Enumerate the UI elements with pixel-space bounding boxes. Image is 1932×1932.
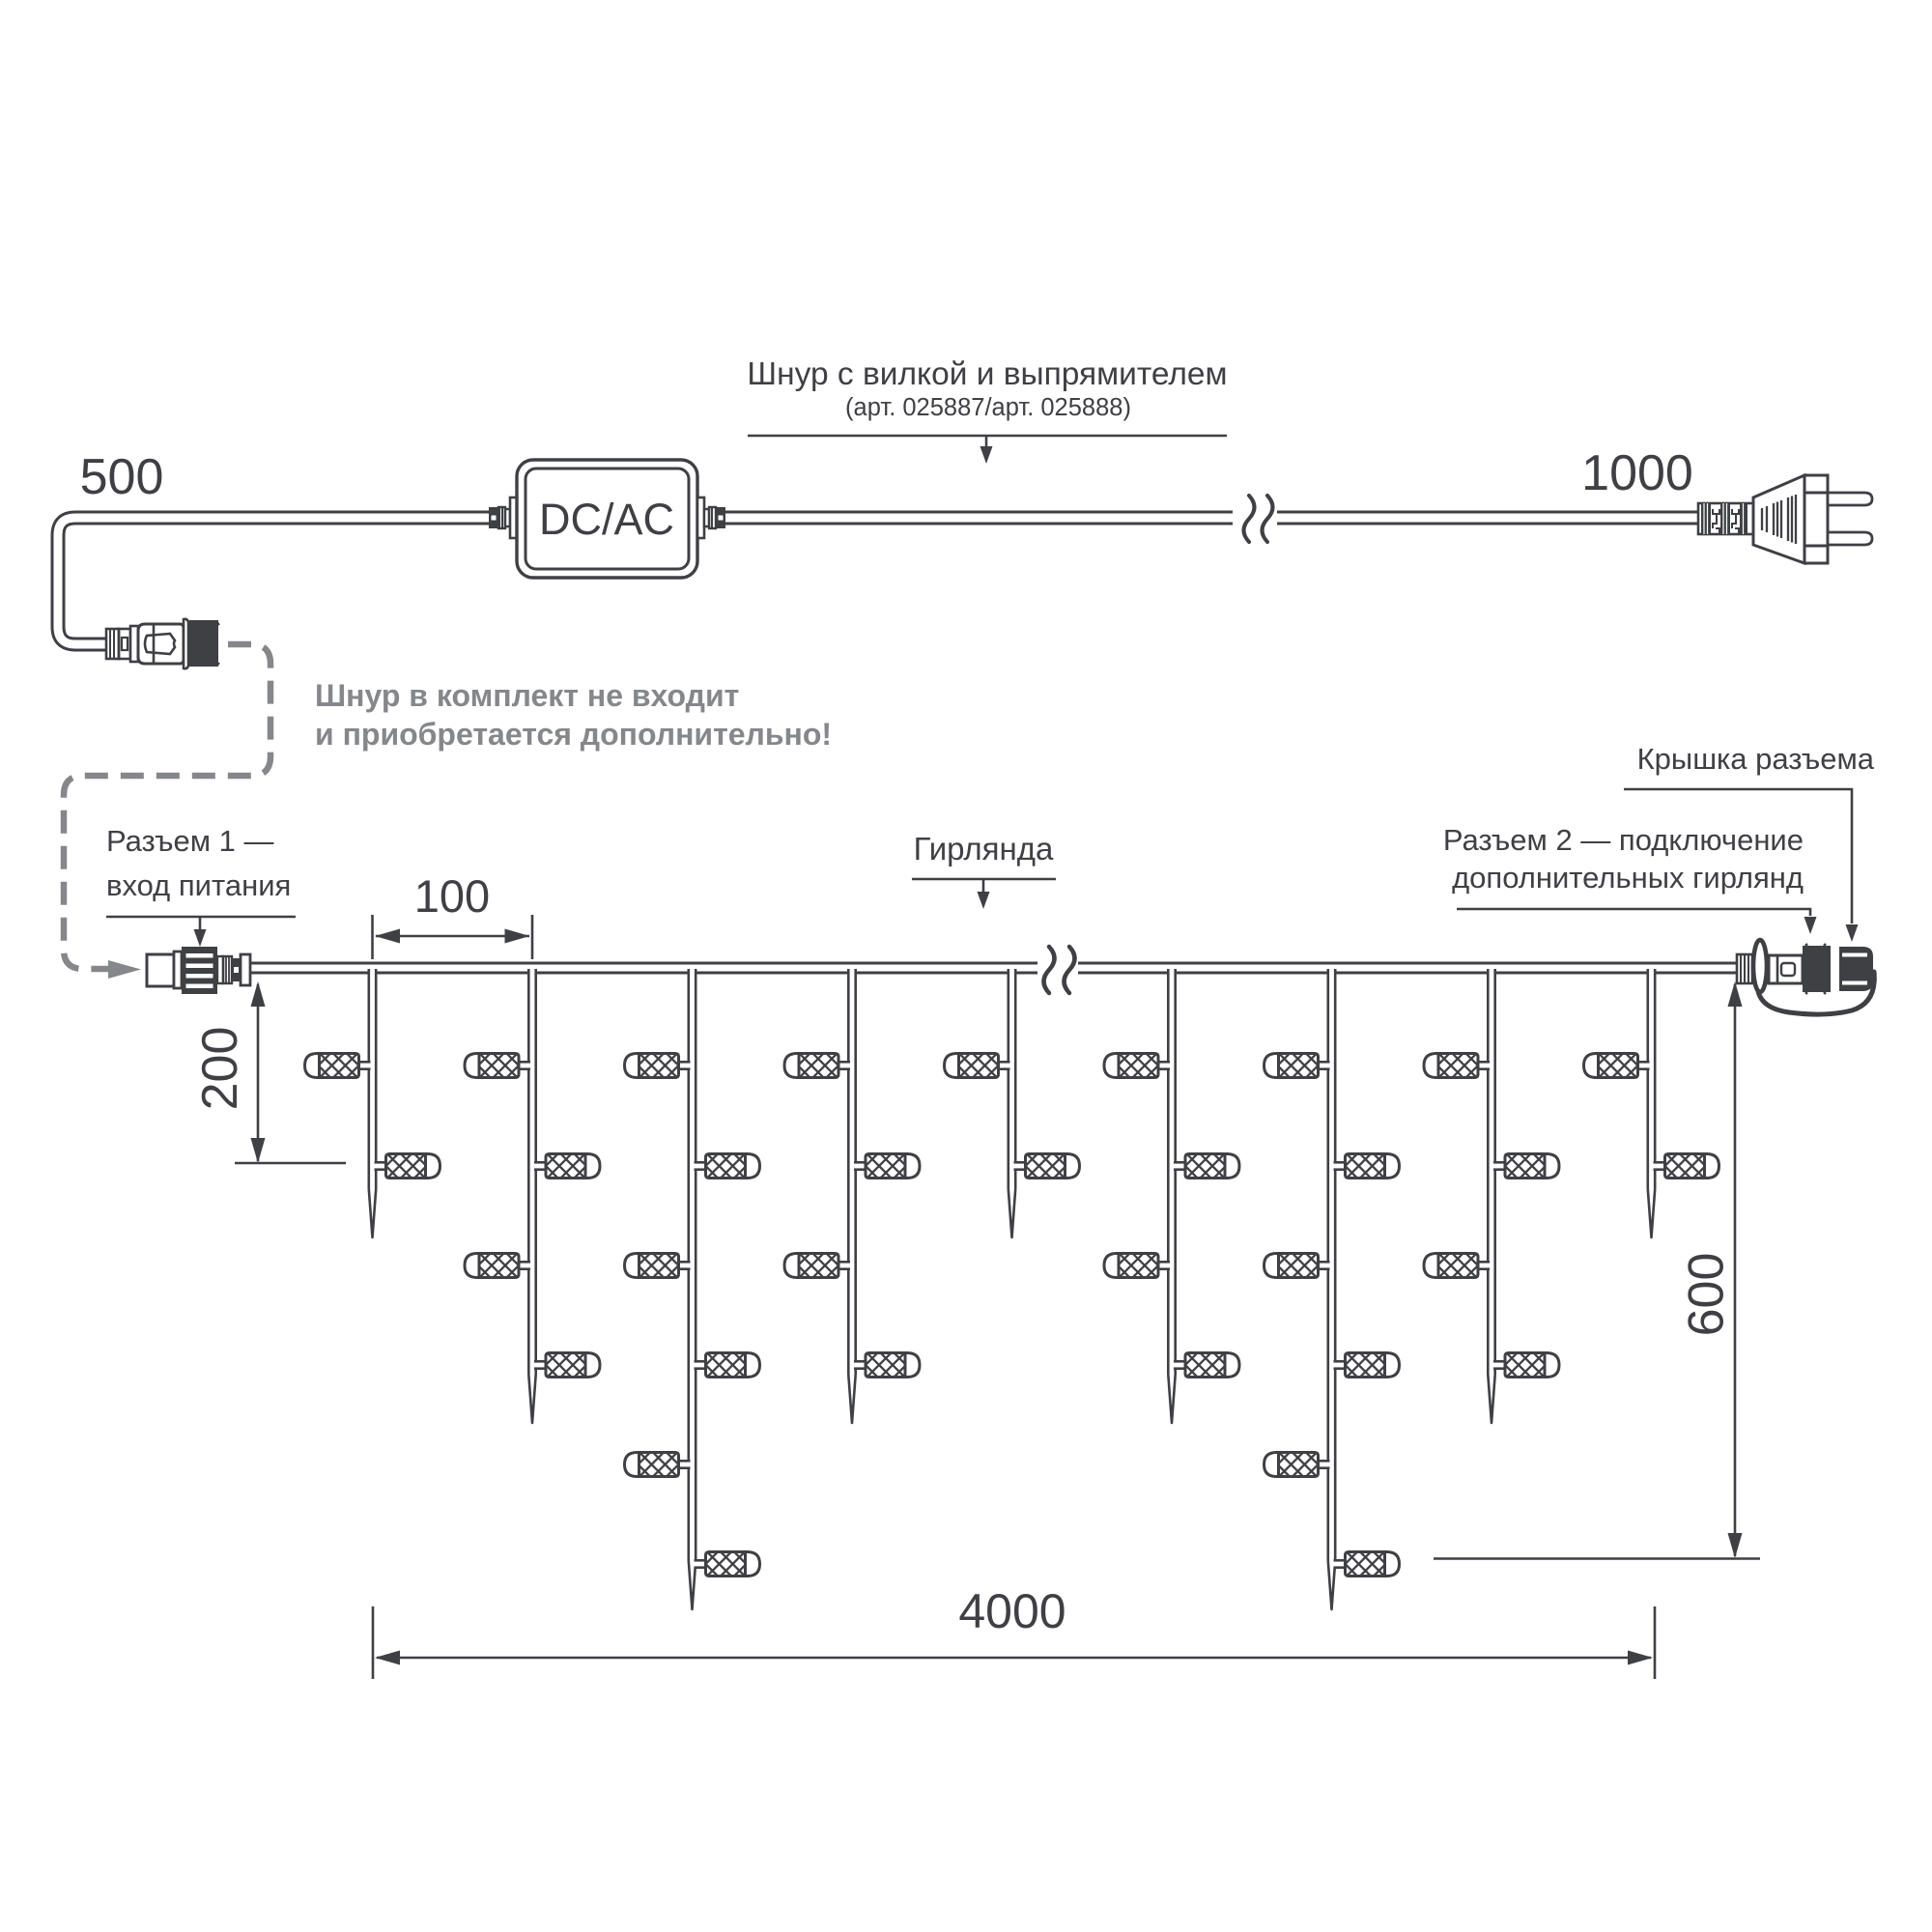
- svg-text:Гирлянда: Гирлянда: [914, 831, 1054, 867]
- svg-text:Крышка разъема: Крышка разъема: [1637, 742, 1875, 776]
- svg-text:Разъем 1 —: Разъем 1 —: [106, 824, 273, 858]
- svg-text:дополнительных гирлянд: дополнительных гирлянд: [1452, 861, 1804, 895]
- svg-text:1000: 1000: [1581, 445, 1693, 501]
- svg-text:(арт. 025887/арт. 025888): (арт. 025887/арт. 025888): [845, 394, 1131, 421]
- svg-text:200: 200: [192, 1027, 248, 1111]
- svg-text:Шнур в комплект не входит: Шнур в комплект не входит: [315, 678, 739, 713]
- svg-text:Шнур с вилкой и выпрямителем: Шнур с вилкой и выпрямителем: [747, 356, 1227, 392]
- svg-text:вход питания: вход питания: [106, 868, 291, 902]
- svg-text:Разъем 2 — подключение: Разъем 2 — подключение: [1443, 823, 1804, 857]
- svg-text:DC/AC: DC/AC: [539, 495, 674, 544]
- svg-text:600: 600: [1679, 1253, 1735, 1337]
- svg-text:4000: 4000: [958, 1584, 1065, 1638]
- svg-text:500: 500: [80, 449, 164, 505]
- svg-text:100: 100: [414, 870, 490, 922]
- svg-text:и приобретается дополнительно!: и приобретается дополнительно!: [315, 717, 832, 752]
